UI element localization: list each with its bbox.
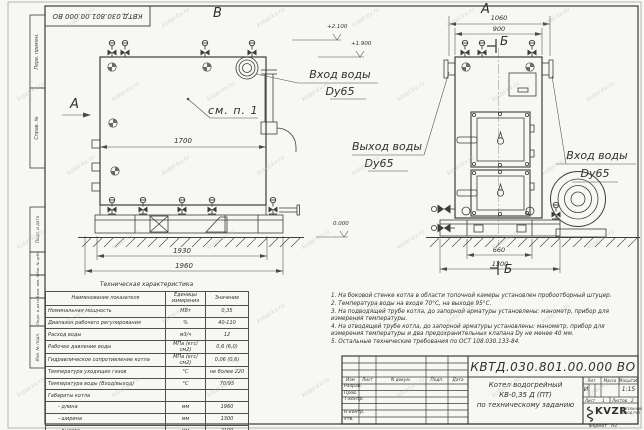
scale-header: Масштаб [619,379,638,383]
side-ground [426,238,640,248]
dim-side-base: 1300 [485,261,515,268]
callout-outlet-line2: Dy65 [352,158,406,169]
dim-front-width: 1700 [163,138,203,145]
product-name-line1: Котел водогрейный [469,382,582,389]
note-line: 2. Температура воды на входе 70°С, на вы… [331,302,491,308]
callout-inlet-side-line2: Dy65 [568,168,622,179]
tech-table: Наименование показателя Единицы измерени… [45,291,249,430]
tech-header-name: Наименование показателя [46,292,166,306]
elevation-top: +2.100 [327,25,347,31]
row-label-nkontr: Н.контр. [344,411,365,416]
dim-front-overall: 1960 [164,263,204,270]
table-row: Номинальная мощностьМВт0,35 [46,306,249,318]
view-arrow-label-a: А [70,98,79,111]
sheet-value: 1 [602,399,605,403]
row-label-prov: Пров. [344,392,357,397]
callout-inlet-front-line2: Dy65 [313,86,367,97]
col-header-docnum: N докум. [376,379,426,383]
side-flange-right [542,60,553,78]
mass-header: Масса [601,379,619,383]
table-row: Температура уходящих газов°Сне более 220 [46,367,249,379]
callout-inlet-side-line1: Вход воды [558,150,636,161]
sheet-label: Лист [585,399,595,403]
table-row: Температура воды (Вход/выход)°С70/95 [46,378,249,390]
table-row: - высотамм2100 [46,425,249,430]
row-label-utv: Утв. [344,418,354,423]
note-line: 3. На подводящей трубе котла, до запорно… [331,310,609,316]
elevation-pipe: +1.900 [351,42,371,48]
side-view-drawing [426,40,640,247]
row-label-tkontr: Т.контр. [344,398,364,403]
col-header-data: Дата [448,379,468,383]
table-row: Габариты котла [46,390,249,402]
upper-door [457,112,534,167]
note-line: 4. На отводящей трубе котла, до запорной… [331,325,605,331]
dim-side-overall-top: 1060 [482,15,516,22]
table-row: Расход водым3/ч12 [46,329,249,341]
elevation-ground: 0.000 [333,222,349,228]
format-label: Формат [583,425,607,430]
note-line: 5. Остальные технические требования по О… [331,340,520,346]
margin-label-podp-data-1: Подп. и дата [31,207,45,252]
lit-value: И [583,387,589,393]
sheet: КВТД.030.801.00.000 ВО Перв. примен. Спр… [0,0,644,430]
front-skid [95,215,283,233]
margin-label-podp-data-2: Подп. и дата [31,298,45,326]
tech-table-title: Техническая характеристика [45,282,248,288]
margin-label-inv-dubl: Инв. № дубл. [31,252,45,275]
tech-table-header-row: Наименование показателя Единицы измерени… [46,292,249,306]
callout-inlet-front-line1: Вход воды [303,69,377,80]
table-row: Диапазон рабочего регулирования%40-110 [46,317,249,329]
front-ground [78,238,304,248]
see-note-label: см. п. 1 [208,105,259,116]
margin-label-sprav-no: Справ. № [31,88,45,168]
margin-label-vzam-inv: Взам. инв. № [31,275,45,298]
dim-side-base-inner: 660 [483,247,515,254]
scale-value: 1:15 [619,387,638,393]
dim-side-body: 900 [485,26,513,33]
logo-coil-icon [588,407,593,421]
side-base [440,220,560,236]
tech-header-unit: Единицы измерения [166,292,206,306]
row-label-razrab: Разраб. [344,385,362,390]
drain-valves [431,205,455,233]
section-label-b-top: Б [500,35,508,47]
side-flange-left [444,60,455,78]
lit-header: Лит. [583,379,601,383]
sheets-value: 2 [631,399,634,403]
table-row: Гидравлическое сопротивление котлаМПа (к… [46,354,249,367]
note-line: измерения температуры и два предохраните… [331,332,574,338]
margin-label-perv-primen: Перв. примен. [31,15,45,88]
dim-front-base: 1930 [162,248,202,255]
lower-door [457,170,534,216]
note-line: измерения температуры. [331,317,407,323]
product-name-line3: по техническому заданию [469,402,582,409]
logo-subtext-2: ЗАВОД РЭП [621,412,640,415]
col-header-list: Лист [359,379,376,383]
sheets-label: Листов [612,399,627,403]
stamp-doc-number: КВТД.030.801.00.000 ВО [45,6,150,26]
view-label-v: В [213,7,222,20]
doc-number: КВТД.030.801.00.000 ВО [470,361,636,373]
format-value: А3 [611,425,617,430]
tech-header-value: Значение [206,292,249,306]
table-row: Рабочее давление водыМПа (кгс/см2)0,6 (6… [46,341,249,354]
margin-label-inv-podl: Инв. № подл. [31,326,45,368]
col-header-izm: Изм [342,379,359,383]
note-line: 1. На боковой стенке котла в области топ… [331,294,612,300]
col-header-podp: Подп. [426,379,448,383]
table-row: - ширинамм1300 [46,413,249,425]
product-name-line2: КВ-0,35 Д (ПТ) [469,392,582,399]
table-row: - длинамм1960 [46,402,249,414]
inlet-nozzle-front [236,57,258,79]
callout-outlet-line1: Выход воды [350,141,424,152]
